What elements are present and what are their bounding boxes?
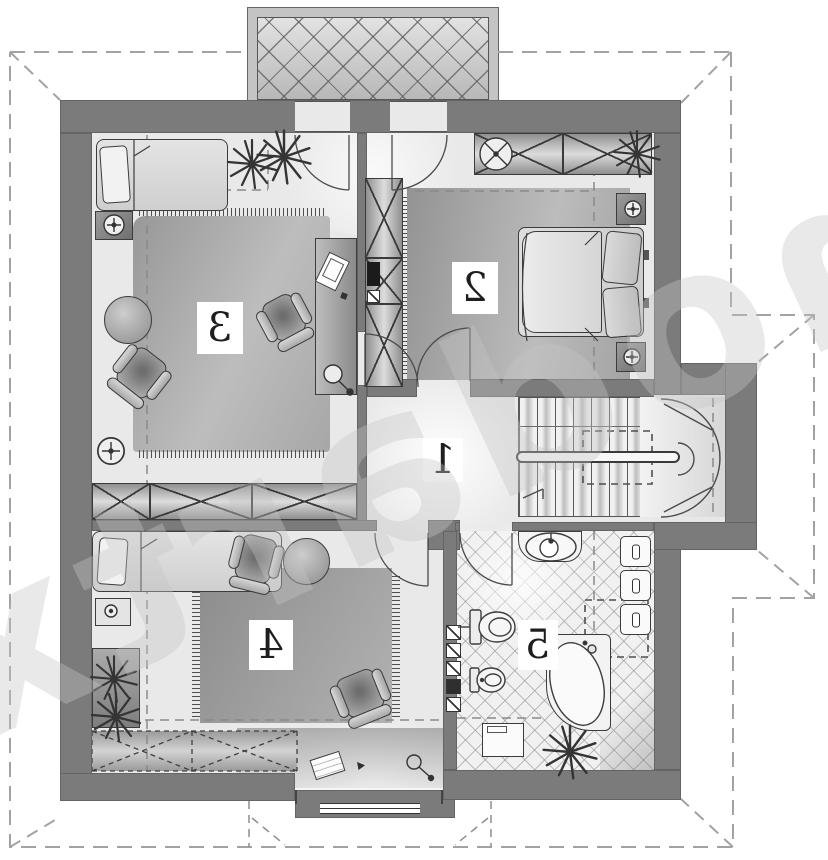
wall-bottom-left — [60, 773, 295, 801]
room3-closet-2 — [150, 483, 252, 520]
balcony — [248, 8, 498, 100]
bath-cabinet-1 — [620, 536, 651, 567]
wall-room3-right-lower — [357, 385, 367, 531]
vent-shaft-4 — [446, 697, 461, 712]
wall-bath-top-left — [455, 522, 460, 531]
bath-cabinet-2 — [620, 570, 651, 601]
room-label-2-bedroom: 2 — [452, 262, 498, 314]
room3-closet-3 — [252, 483, 357, 520]
room2-nightstand-top — [616, 193, 646, 225]
room2-strip-hatch-square — [367, 290, 380, 303]
room3-stool — [97, 437, 125, 465]
room4-pouf — [283, 538, 330, 585]
room4-nightstand — [95, 598, 131, 626]
room2-bed-pillow-1 — [601, 230, 642, 285]
floor-plan: 1 2 3 4 5 modartxe — [0, 0, 828, 860]
wall-bath-top-right — [512, 522, 654, 531]
room2-nightstand-bottom — [616, 342, 646, 372]
room-number: 5 — [525, 625, 550, 665]
balcony-door-opening-room2 — [390, 101, 447, 132]
room4-rug-fringe-right — [392, 574, 400, 717]
room2-bed-blanket — [522, 231, 602, 333]
wall-right-upper — [654, 133, 681, 395]
room-label-1-hall: 1 — [423, 438, 463, 482]
room3-nightstand — [95, 211, 133, 240]
wall-left — [60, 133, 92, 801]
room-number: 3 — [207, 308, 232, 348]
bath-sink-counter — [518, 531, 582, 562]
room4-planter-box — [92, 648, 140, 728]
room4-bed-pillow — [96, 537, 128, 586]
wall-room2-bottom-right — [470, 379, 654, 397]
washer-control-strip — [487, 726, 507, 733]
washing-machine — [482, 723, 524, 757]
vent-shaft-dark — [446, 679, 461, 694]
wall-top — [60, 100, 681, 133]
room-number: 1 — [430, 440, 455, 480]
room3-rug-fringe-bottom — [139, 450, 324, 458]
room4-rug-fringe-left — [192, 574, 200, 717]
room-label-5-bathroom: 5 — [518, 620, 558, 670]
room3-closet-1 — [92, 483, 150, 520]
room-number: 2 — [462, 268, 487, 308]
bay-window — [320, 803, 420, 814]
room2-bed-leg — [644, 250, 649, 260]
bay-jamb-left — [295, 790, 297, 804]
room-label-3-bedroom: 3 — [197, 302, 243, 354]
room-number: 4 — [258, 625, 283, 665]
room2-bed-pillow-2 — [602, 286, 642, 339]
room2-cabinet-strip-1 — [365, 178, 403, 258]
vent-shaft-2 — [446, 643, 461, 658]
vent-shaft-3 — [446, 661, 461, 676]
vent-shaft-1 — [446, 625, 461, 640]
room2-cabinet-strip-3 — [365, 304, 403, 387]
room2-tv-unit — [367, 262, 380, 286]
cabinet-handle — [632, 612, 640, 627]
bay-jamb-right — [441, 790, 443, 804]
room2-wardrobe-top-2 — [563, 133, 652, 175]
wall-room34-left — [92, 520, 377, 531]
wall-bottom-right — [443, 770, 681, 800]
wall-bump-bottom — [654, 522, 757, 550]
cabinet-handle — [632, 544, 640, 559]
wall-right-lower — [654, 522, 681, 770]
room2-bed-leg — [644, 298, 649, 308]
cabinet-handle — [632, 578, 640, 593]
room3-round-table — [104, 296, 152, 344]
balcony-door-opening-room3 — [295, 101, 350, 132]
room3-bed-pillow — [99, 145, 131, 204]
room-label-4-bedroom: 4 — [249, 620, 293, 670]
stairs-handrail — [516, 451, 680, 463]
room4-closet-fill — [92, 731, 297, 771]
room2-wardrobe-top-1 — [474, 133, 563, 175]
laptop-screen-line — [322, 258, 344, 283]
bath-cabinet-3 — [620, 604, 651, 635]
